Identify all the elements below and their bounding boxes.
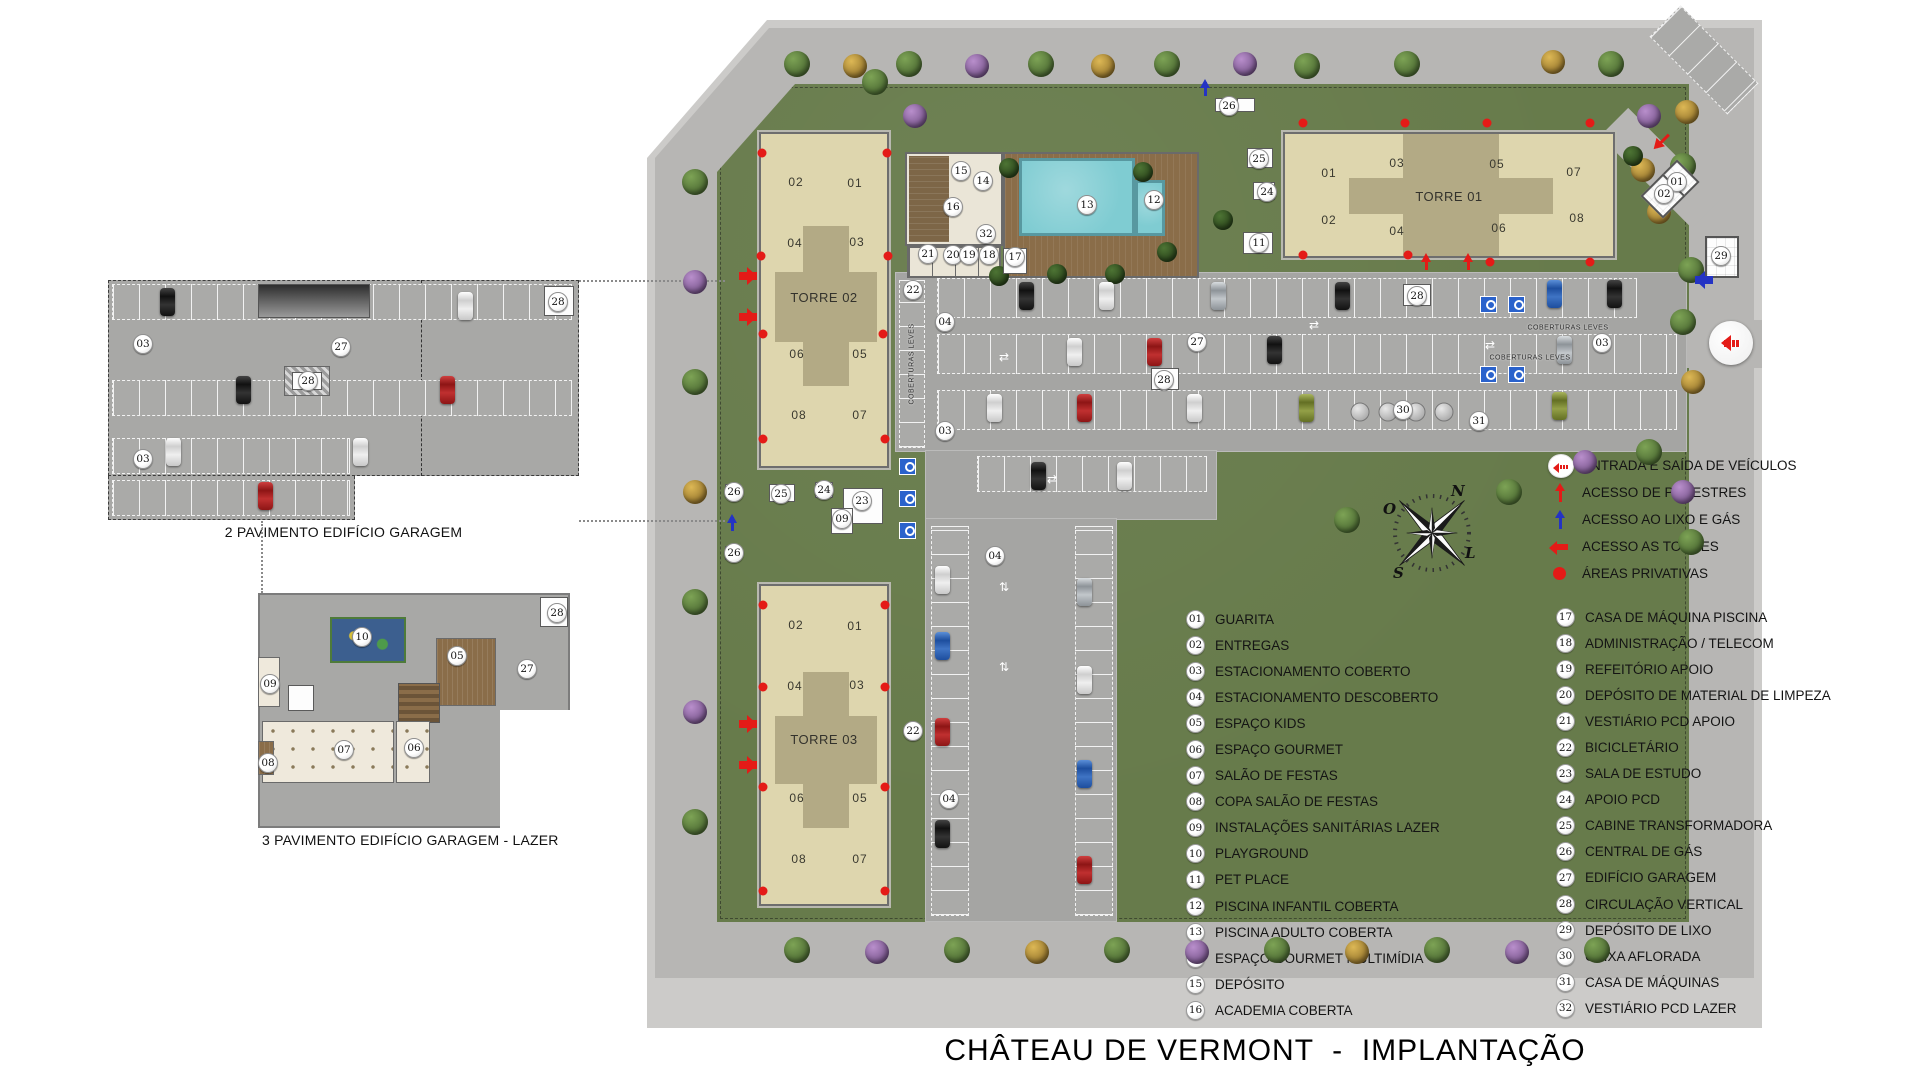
hc-decor bbox=[899, 458, 916, 475]
gc-decor bbox=[1407, 403, 1426, 422]
legend-label: EDIFÍCIO GARAGEM bbox=[1585, 870, 1716, 885]
tower-02: TORRE 02 0201040306050807 bbox=[759, 132, 889, 468]
wbox-decor bbox=[1253, 182, 1275, 200]
legend-number-badge: 29 bbox=[1556, 921, 1575, 940]
legend-number-badge: 19 bbox=[1556, 660, 1575, 679]
unit-number: 04 bbox=[787, 236, 802, 250]
car-decor bbox=[1099, 282, 1114, 310]
compass-west: O bbox=[1383, 500, 1396, 518]
car-decor bbox=[160, 288, 175, 316]
car-decor bbox=[353, 438, 368, 466]
tr-decor bbox=[865, 940, 889, 964]
tr-decor bbox=[1025, 940, 1049, 964]
legend-number-badge: 01 bbox=[1186, 610, 1205, 629]
legend-number-badge: 13 bbox=[1186, 923, 1205, 942]
unit-number: 07 bbox=[852, 852, 867, 866]
unit-number: 03 bbox=[849, 678, 864, 692]
legend-number-badge: 22 bbox=[1556, 738, 1575, 757]
legend-label: CASA DE MÁQUINAS bbox=[1585, 975, 1719, 990]
legend-label: ESPAÇO GOURMET MULTIMÍDIA bbox=[1215, 951, 1424, 966]
wbox-decor bbox=[725, 546, 741, 560]
car-decor bbox=[1077, 578, 1092, 606]
dot-decor bbox=[759, 887, 768, 896]
wbox-decor bbox=[831, 508, 853, 534]
legend-number-badge: 11 bbox=[1186, 870, 1205, 889]
tower-core bbox=[775, 272, 877, 342]
dot-decor bbox=[759, 783, 768, 792]
tr-decor bbox=[1105, 264, 1125, 284]
legend-label: DEPÓSITO bbox=[1215, 977, 1285, 992]
tr-decor bbox=[1047, 264, 1067, 284]
hc-decor bbox=[1508, 296, 1525, 313]
vertical-circulation-box bbox=[544, 286, 574, 316]
legend-row: 03 ESTACIONAMENTO COBERTO bbox=[1186, 658, 1440, 684]
car-decor bbox=[987, 394, 1002, 422]
unit-number: 01 bbox=[1321, 166, 1336, 180]
legend-label: REFEITÓRIO APOIO bbox=[1585, 662, 1713, 677]
tr-decor bbox=[1213, 210, 1233, 230]
legend-symbol-label: ACESSO AO LIXO E GÁS bbox=[1582, 512, 1740, 527]
legend-number-badge: 24 bbox=[1556, 790, 1575, 809]
legend-label: COPA SALÃO DE FESTAS bbox=[1215, 794, 1378, 809]
tr-decor bbox=[1264, 937, 1290, 963]
wbox-decor bbox=[815, 482, 833, 498]
tr-decor bbox=[1541, 50, 1565, 74]
legend-row: 28 CIRCULAÇÃO VERTICAL bbox=[1556, 891, 1831, 917]
wbox-decor bbox=[1403, 284, 1431, 306]
trash-depot-building bbox=[1705, 236, 1739, 278]
dot-decor bbox=[759, 601, 768, 610]
dot-decor bbox=[1299, 251, 1308, 260]
legend-number-badge: 03 bbox=[1186, 662, 1205, 681]
tr-decor bbox=[862, 69, 888, 95]
tr-decor bbox=[1681, 370, 1705, 394]
unit-number: 05 bbox=[852, 347, 867, 361]
unit-number: 08 bbox=[1569, 211, 1584, 225]
tr-decor bbox=[1028, 51, 1054, 77]
wbox-decor bbox=[1151, 368, 1179, 390]
party-hall bbox=[262, 721, 394, 783]
unit-number: 02 bbox=[1321, 213, 1336, 227]
tr-decor bbox=[1675, 100, 1699, 124]
dot-decor bbox=[1404, 251, 1413, 260]
car-decor bbox=[440, 376, 455, 404]
compass-south: S bbox=[1393, 564, 1404, 582]
legend-number-badge: 02 bbox=[1186, 636, 1205, 655]
hc-decor bbox=[1480, 296, 1497, 313]
dot-decor bbox=[881, 783, 890, 792]
legend-number-badge: 32 bbox=[1556, 999, 1575, 1018]
compass-rose: N O S L bbox=[1377, 478, 1487, 588]
legend-row: 07 SALÃO DE FESTAS bbox=[1186, 763, 1440, 789]
dot-decor bbox=[883, 149, 892, 158]
legend-symbol-label: ÁREAS PRIVATIVAS bbox=[1582, 566, 1708, 581]
legend-number-badge: 05 bbox=[1186, 714, 1205, 733]
legend-label: SALA DE ESTUDO bbox=[1585, 766, 1701, 781]
tr-decor bbox=[1133, 162, 1153, 182]
page-title: CHÂTEAU DE VERMONT - IMPLANTAÇÃO bbox=[860, 1034, 1670, 1068]
tr-decor bbox=[896, 51, 922, 77]
tr-decor bbox=[965, 54, 989, 78]
legend-number-badge: 07 bbox=[1186, 766, 1205, 785]
parking-row bbox=[937, 278, 1637, 318]
vertical-circulation-box bbox=[540, 597, 568, 627]
legend-label: PISCINA INFANTIL COBERTA bbox=[1215, 899, 1399, 914]
kids-deck bbox=[436, 638, 496, 706]
wda-decor: ⇅ bbox=[999, 580, 1009, 594]
tr-decor bbox=[683, 270, 707, 294]
tr-decor bbox=[1496, 479, 1522, 505]
legend-label: VESTIÁRIO PCD APOIO bbox=[1585, 714, 1735, 729]
car-decor bbox=[935, 632, 950, 660]
car-decor bbox=[1147, 338, 1162, 366]
legend-label: DEPÓSITO DE LIXO bbox=[1585, 923, 1712, 938]
sanitary-rooms bbox=[258, 657, 280, 707]
playground-area bbox=[330, 617, 406, 663]
legend-number-badge: 30 bbox=[1556, 947, 1575, 966]
tr-decor bbox=[1233, 52, 1257, 76]
legend-label: ESPAÇO KIDS bbox=[1215, 716, 1306, 731]
tr-decor bbox=[1334, 507, 1360, 533]
tr-decor bbox=[1294, 53, 1320, 79]
legend-row: 05 ESPAÇO KIDS bbox=[1186, 710, 1440, 736]
wda-decor: ⇄ bbox=[1309, 318, 1319, 332]
car-decor bbox=[1067, 338, 1082, 366]
compass-east: L bbox=[1465, 544, 1476, 562]
tr-decor bbox=[683, 700, 707, 724]
support-rooms bbox=[907, 246, 1001, 278]
car-decor bbox=[1117, 462, 1132, 490]
legend-row: 14 ESPAÇO GOURMET MULTIMÍDIA bbox=[1186, 945, 1440, 971]
wda-decor: ⇅ bbox=[999, 660, 1009, 674]
tr-decor bbox=[784, 937, 810, 963]
dot-decor bbox=[757, 252, 766, 261]
legend-row: 27 EDIFÍCIO GARAGEM bbox=[1556, 865, 1831, 891]
wbox-decor bbox=[1243, 232, 1273, 254]
legend-number-badge: 21 bbox=[1556, 712, 1575, 731]
car-decor bbox=[1267, 336, 1282, 364]
legend-column-1: 01 GUARITA 02 ENTREGAS 03 ESTACIONAMENTO… bbox=[1186, 606, 1440, 1024]
tr-decor bbox=[1670, 309, 1696, 335]
symbol-legend-row: ACESSO AO LIXO E GÁS bbox=[1548, 506, 1797, 533]
legend-label: VESTIÁRIO PCD LAZER bbox=[1585, 1001, 1737, 1016]
legend-number-badge: 27 bbox=[1556, 868, 1575, 887]
garage-ramp bbox=[258, 284, 370, 318]
legend-row: 22 BICICLETÁRIO bbox=[1556, 734, 1831, 760]
legend-number-badge: 28 bbox=[1556, 895, 1575, 914]
legend-label: ESPAÇO GOURMET bbox=[1215, 742, 1343, 757]
legend-row: 20 DEPÓSITO DE MATERIAL DE LIMPEZA bbox=[1556, 682, 1831, 708]
legend-row: 31 CASA DE MÁQUINAS bbox=[1556, 969, 1831, 995]
dot-decor bbox=[884, 252, 893, 261]
dot-decor bbox=[759, 435, 768, 444]
legend-row: 13 PISCINA ADULTO COBERTA bbox=[1186, 919, 1440, 945]
dot-decor bbox=[881, 887, 890, 896]
legend-row: 16 ACADEMIA COBERTA bbox=[1186, 997, 1440, 1023]
legend-label: ADMINISTRAÇÃO / TELECOM bbox=[1585, 636, 1774, 651]
symbol-legend-row: ACESSO AS TORRES bbox=[1548, 533, 1797, 560]
car-decor bbox=[935, 820, 950, 848]
legend-row: 25 CABINE TRANSFORMADORA bbox=[1556, 813, 1831, 839]
wda-decor: ⇄ bbox=[1485, 338, 1495, 352]
tr-decor bbox=[999, 158, 1019, 178]
legend-number-badge: 04 bbox=[1186, 688, 1205, 707]
legend-row: 19 REFEITÓRIO APOIO bbox=[1556, 656, 1831, 682]
aR-decor bbox=[739, 313, 757, 321]
tr-decor bbox=[1623, 146, 1643, 166]
tr-decor bbox=[1091, 54, 1115, 78]
legend-label: CENTRAL DE GÁS bbox=[1585, 844, 1702, 859]
dot-decor bbox=[758, 149, 767, 158]
wbox-decor bbox=[1237, 98, 1255, 112]
legend-row: 04 ESTACIONAMENTO DESCOBERTO bbox=[1186, 684, 1440, 710]
car-decor bbox=[1552, 392, 1567, 420]
legend-number-badge: 23 bbox=[1556, 764, 1575, 783]
tr-decor bbox=[1157, 242, 1177, 262]
dot-decor bbox=[759, 330, 768, 339]
legend-label: BICICLETÁRIO bbox=[1585, 740, 1679, 755]
aR-decor bbox=[739, 720, 757, 728]
tr-decor bbox=[1573, 450, 1597, 474]
car-decor bbox=[1077, 856, 1092, 884]
legend-row: 02 ENTREGAS bbox=[1186, 632, 1440, 658]
car-decor bbox=[1299, 394, 1314, 422]
dot-decor bbox=[881, 435, 890, 444]
adult-pool bbox=[1019, 158, 1135, 236]
tr-decor bbox=[683, 480, 707, 504]
legend-number-badge: 16 bbox=[1186, 1001, 1205, 1020]
tr-decor bbox=[1154, 51, 1180, 77]
legend-label: CASA DE MÁQUINA PISCINA bbox=[1585, 610, 1767, 625]
wbox-decor bbox=[725, 484, 741, 498]
tower-name: TORRE 01 bbox=[1285, 189, 1613, 204]
aR-decor bbox=[739, 761, 757, 769]
aUr-decor bbox=[1467, 256, 1470, 270]
dot-decor bbox=[881, 683, 890, 692]
legend-label: INSTALAÇÕES SANITÁRIAS LAZER bbox=[1215, 820, 1440, 835]
parking-row bbox=[112, 380, 572, 416]
implantation-poster: COBERTURAS LEVES COBERTURAS LEVES COBERT… bbox=[0, 0, 1920, 1080]
tr-decor bbox=[784, 51, 810, 77]
gym-floor bbox=[909, 156, 949, 242]
legend-row: 17 CASA DE MÁQUINA PISCINA bbox=[1556, 604, 1831, 630]
legend-label: ESTACIONAMENTO COBERTO bbox=[1215, 664, 1411, 679]
legend-label: APOIO PCD bbox=[1585, 792, 1660, 807]
symbol-legend-row: ÁREAS PRIVATIVAS bbox=[1548, 560, 1797, 587]
elevator-box bbox=[288, 685, 314, 711]
unit-number: 05 bbox=[852, 791, 867, 805]
legend-label: GUARITA bbox=[1215, 612, 1274, 627]
garage-level2-label: 2 PAVIMENTO EDIFÍCIO GARAGEM bbox=[108, 524, 579, 540]
dot-decor bbox=[1586, 119, 1595, 128]
tr-decor bbox=[682, 369, 708, 395]
legend-row: 26 CENTRAL DE GÁS bbox=[1556, 839, 1831, 865]
stair-box bbox=[292, 372, 322, 390]
tr-decor bbox=[1424, 937, 1450, 963]
legend-number-badge: 06 bbox=[1186, 740, 1205, 759]
car-decor bbox=[1077, 394, 1092, 422]
legend-row: 01 GUARITA bbox=[1186, 606, 1440, 632]
tr-decor bbox=[682, 809, 708, 835]
pool-machine-room bbox=[1003, 248, 1027, 274]
tr-decor bbox=[682, 169, 708, 195]
garage-level3-label: 3 PAVIMENTO EDIFÍCIO GARAGEM - LAZER bbox=[262, 832, 559, 848]
legend-number-badge: 09 bbox=[1186, 818, 1205, 837]
tr-decor bbox=[1394, 51, 1420, 77]
legend-symbol-icon bbox=[1548, 508, 1574, 532]
parking-row bbox=[112, 480, 350, 516]
gc-decor bbox=[1379, 403, 1398, 422]
car-decor bbox=[166, 438, 181, 466]
wda-decor: ⇄ bbox=[999, 350, 1009, 364]
car-decor bbox=[1187, 394, 1202, 422]
legend-number-badge: 18 bbox=[1556, 634, 1575, 653]
dot-decor bbox=[881, 601, 890, 610]
legend-symbol-label: ACESSO DE PEDESTRES bbox=[1582, 485, 1746, 500]
unit-number: 03 bbox=[849, 235, 864, 249]
wda-decor: ⇄ bbox=[1047, 472, 1057, 486]
vehicle-entrance-icon bbox=[1709, 321, 1753, 365]
tr-decor bbox=[1598, 51, 1624, 77]
aUb-decor bbox=[1204, 82, 1207, 96]
legend-row: 15 DEPÓSITO bbox=[1186, 971, 1440, 997]
dot-decor bbox=[879, 330, 888, 339]
legend-row: 11 PET PLACE bbox=[1186, 867, 1440, 893]
garage-level3-plan: 1005090706082728 bbox=[258, 593, 570, 828]
tr-decor bbox=[1584, 937, 1610, 963]
tr-decor bbox=[1185, 940, 1209, 964]
legend-label: ENTREGAS bbox=[1215, 638, 1289, 653]
kids-pool bbox=[1135, 180, 1165, 236]
tr-decor bbox=[1671, 480, 1695, 504]
legend-row: 09 INSTALAÇÕES SANITÁRIAS LAZER bbox=[1186, 815, 1440, 841]
gc-decor bbox=[1351, 403, 1370, 422]
legend-symbol-icon bbox=[1548, 481, 1574, 505]
wbox-decor bbox=[1215, 98, 1233, 112]
unit-number: 08 bbox=[791, 852, 806, 866]
unit-number: 04 bbox=[787, 679, 802, 693]
hc-decor bbox=[1480, 366, 1497, 383]
legend-label: PET PLACE bbox=[1215, 872, 1289, 887]
legend-number-badge: 15 bbox=[1186, 975, 1205, 994]
hc-decor bbox=[899, 490, 916, 507]
unit-number: 02 bbox=[788, 175, 803, 189]
legend-number-badge: 20 bbox=[1556, 686, 1575, 705]
hc-decor bbox=[899, 522, 916, 539]
legend-number-badge: 17 bbox=[1556, 608, 1575, 627]
legend-row: 10 PLAYGROUND bbox=[1186, 841, 1440, 867]
car-decor bbox=[1547, 280, 1562, 308]
legend-number-badge: 08 bbox=[1186, 792, 1205, 811]
tr-decor bbox=[1678, 529, 1704, 555]
unit-number: 01 bbox=[847, 176, 862, 190]
legend-label: ACADEMIA COBERTA bbox=[1215, 1003, 1353, 1018]
stairs bbox=[398, 683, 440, 723]
legend-row: 18 ADMINISTRAÇÃO / TELECOM bbox=[1556, 630, 1831, 656]
tower-name: TORRE 02 bbox=[761, 290, 887, 305]
car-decor bbox=[1077, 760, 1092, 788]
legend-label: DEPÓSITO DE MATERIAL DE LIMPEZA bbox=[1585, 688, 1831, 703]
tr-decor bbox=[1345, 940, 1369, 964]
dot-decor bbox=[1299, 119, 1308, 128]
tr-decor bbox=[1505, 940, 1529, 964]
unit-number: 07 bbox=[852, 408, 867, 422]
garage-level2-plan: 0327280328 bbox=[108, 280, 579, 520]
car-decor bbox=[1019, 282, 1034, 310]
dot-decor bbox=[1401, 119, 1410, 128]
unit-number: 02 bbox=[788, 618, 803, 632]
dot-decor bbox=[1486, 258, 1495, 267]
legend-number-badge: 12 bbox=[1186, 897, 1205, 916]
wbox-decor bbox=[1247, 148, 1273, 168]
legend-number-badge: 26 bbox=[1556, 842, 1575, 861]
car-decor bbox=[236, 376, 251, 404]
tr-decor bbox=[903, 104, 927, 128]
tower-core bbox=[775, 716, 877, 784]
tr-decor bbox=[944, 937, 970, 963]
legend-row: 08 COPA SALÃO DE FESTAS bbox=[1186, 789, 1440, 815]
legend-label: CIRCULAÇÃO VERTICAL bbox=[1585, 897, 1743, 912]
car-decor bbox=[1031, 462, 1046, 490]
car-decor bbox=[1335, 282, 1350, 310]
car-decor bbox=[1077, 666, 1092, 694]
legend-label: PLAYGROUND bbox=[1215, 846, 1309, 861]
kitchen-strip bbox=[258, 741, 274, 775]
unit-number: 08 bbox=[791, 408, 806, 422]
legend-label: SALÃO DE FESTAS bbox=[1215, 768, 1338, 783]
aR-decor bbox=[739, 272, 757, 280]
legend-number-badge: 25 bbox=[1556, 816, 1575, 835]
legend-label: ESTACIONAMENTO DESCOBERTO bbox=[1215, 690, 1438, 705]
gc-decor bbox=[1435, 403, 1454, 422]
coberturas-leves-label: COBERTURAS LEVES bbox=[1527, 325, 1608, 332]
dot-decor bbox=[759, 683, 768, 692]
legend-symbol-icon bbox=[1548, 535, 1574, 559]
legend-row: 24 APOIO PCD bbox=[1556, 787, 1831, 813]
tr-decor bbox=[1636, 439, 1662, 465]
connector-line bbox=[261, 521, 263, 593]
parking-row bbox=[112, 438, 350, 474]
car-decor bbox=[935, 718, 950, 746]
car-decor bbox=[1211, 282, 1226, 310]
coberturas-leves-label: COBERTURAS LEVES bbox=[1489, 355, 1570, 362]
legend-number-badge: 31 bbox=[1556, 973, 1575, 992]
car-decor bbox=[458, 292, 473, 320]
legend-row: 12 PISCINA INFANTIL COBERTA bbox=[1186, 893, 1440, 919]
connector-line bbox=[579, 520, 725, 522]
legend-symbol-icon bbox=[1548, 454, 1574, 478]
tr-decor bbox=[1104, 937, 1130, 963]
compass-north: N bbox=[1451, 482, 1465, 500]
legend-symbol-icon bbox=[1548, 562, 1574, 586]
tower-name: TORRE 03 bbox=[761, 732, 887, 747]
legend-row: 06 ESPAÇO GOURMET bbox=[1186, 736, 1440, 762]
dot-decor bbox=[1483, 119, 1492, 128]
tower-01: TORRE 01 0103050702040608 bbox=[1283, 132, 1615, 258]
legend-symbol-label: ENTRADA E SAÍDA DE VEÍCULOS bbox=[1582, 458, 1797, 473]
wbox-decor bbox=[769, 484, 795, 502]
car-decor bbox=[258, 482, 273, 510]
unit-number: 07 bbox=[1566, 165, 1581, 179]
tr-decor bbox=[1637, 104, 1661, 128]
aUr-decor bbox=[1425, 256, 1428, 270]
legend-row: 32 VESTIÁRIO PCD LAZER bbox=[1556, 995, 1831, 1021]
legend-label: PISCINA ADULTO COBERTA bbox=[1215, 925, 1393, 940]
legend-row: 23 SALA DE ESTUDO bbox=[1556, 761, 1831, 787]
gourmet-room bbox=[396, 721, 430, 783]
car-decor bbox=[1607, 280, 1622, 308]
tower-03: TORRE 03 0201040306050807 bbox=[759, 584, 889, 906]
